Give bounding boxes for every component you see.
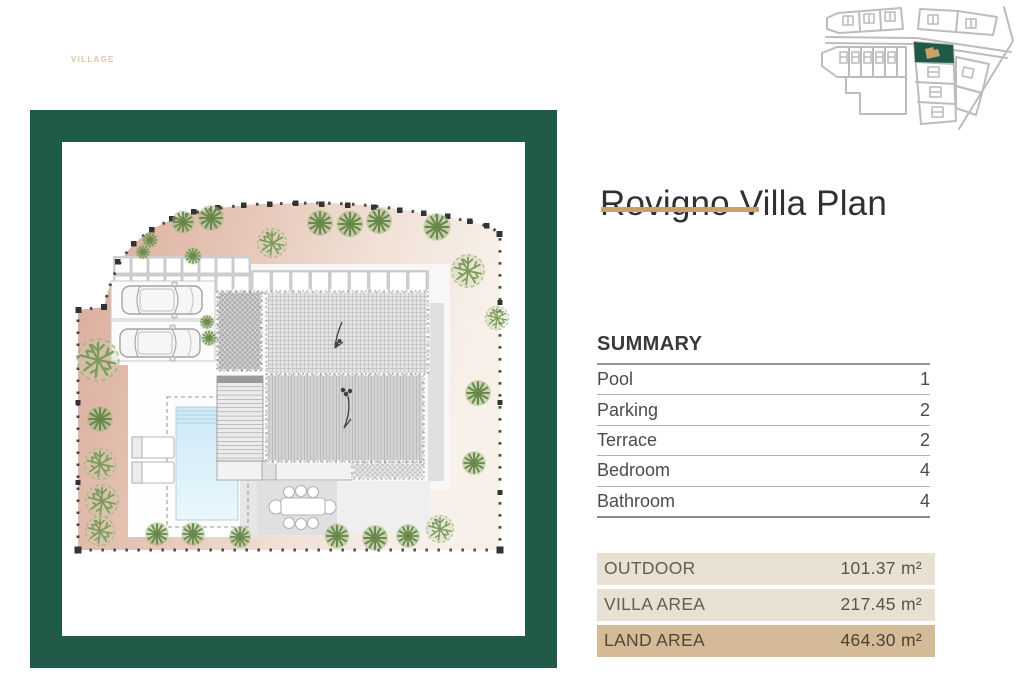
car-icon [122,282,202,318]
summary-label: Terrace [597,430,657,451]
area-value: 101.37 m² [841,558,923,579]
summary-value: 2 [920,430,930,451]
area-row-land: LAND AREA 464.30 m² [597,625,935,657]
summary-label: Pool [597,369,633,390]
brand-watermark: VILLAGE [71,55,115,64]
summary-value: 2 [920,400,930,421]
plan-frame [30,110,557,668]
area-row-villa: VILLA AREA 217.45 m² [597,589,935,621]
page-title: Rovigno Villa Plan [600,184,887,224]
area-value: 217.45 m² [841,594,923,615]
summary-row-terrace: Terrace 2 [597,426,930,456]
summary-value: 4 [920,491,930,512]
highlighted-plot [914,42,954,63]
summary-section: SUMMARY Pool 1 Parking 2 Terrace 2 Bedro… [597,333,930,518]
summary-row-bathroom: Bathroom 4 [597,487,930,518]
location-minimap [818,4,1018,136]
area-label: VILLA AREA [604,594,705,615]
summary-heading: SUMMARY [597,333,930,365]
summary-value: 1 [920,369,930,390]
summary-label: Bathroom [597,491,675,512]
summary-row-pool: Pool 1 [597,365,930,395]
area-label: LAND AREA [604,630,705,651]
area-value: 464.30 m² [841,630,923,651]
area-label: OUTDOOR [604,558,696,579]
area-row-outdoor: OUTDOOR 101.37 m² [597,553,935,585]
title-underline [601,207,759,212]
summary-label: Bedroom [597,460,670,481]
site-plan [62,142,525,636]
plan-frame-inner [62,142,525,636]
car-icon [120,325,200,361]
summary-row-parking: Parking 2 [597,395,930,425]
summary-label: Parking [597,400,658,421]
villa-roof [217,291,444,481]
parking-area [111,281,215,361]
summary-value: 4 [920,460,930,481]
area-stats-section: OUTDOOR 101.37 m² VILLA AREA 217.45 m² L… [597,553,935,661]
summary-row-bedroom: Bedroom 4 [597,456,930,486]
